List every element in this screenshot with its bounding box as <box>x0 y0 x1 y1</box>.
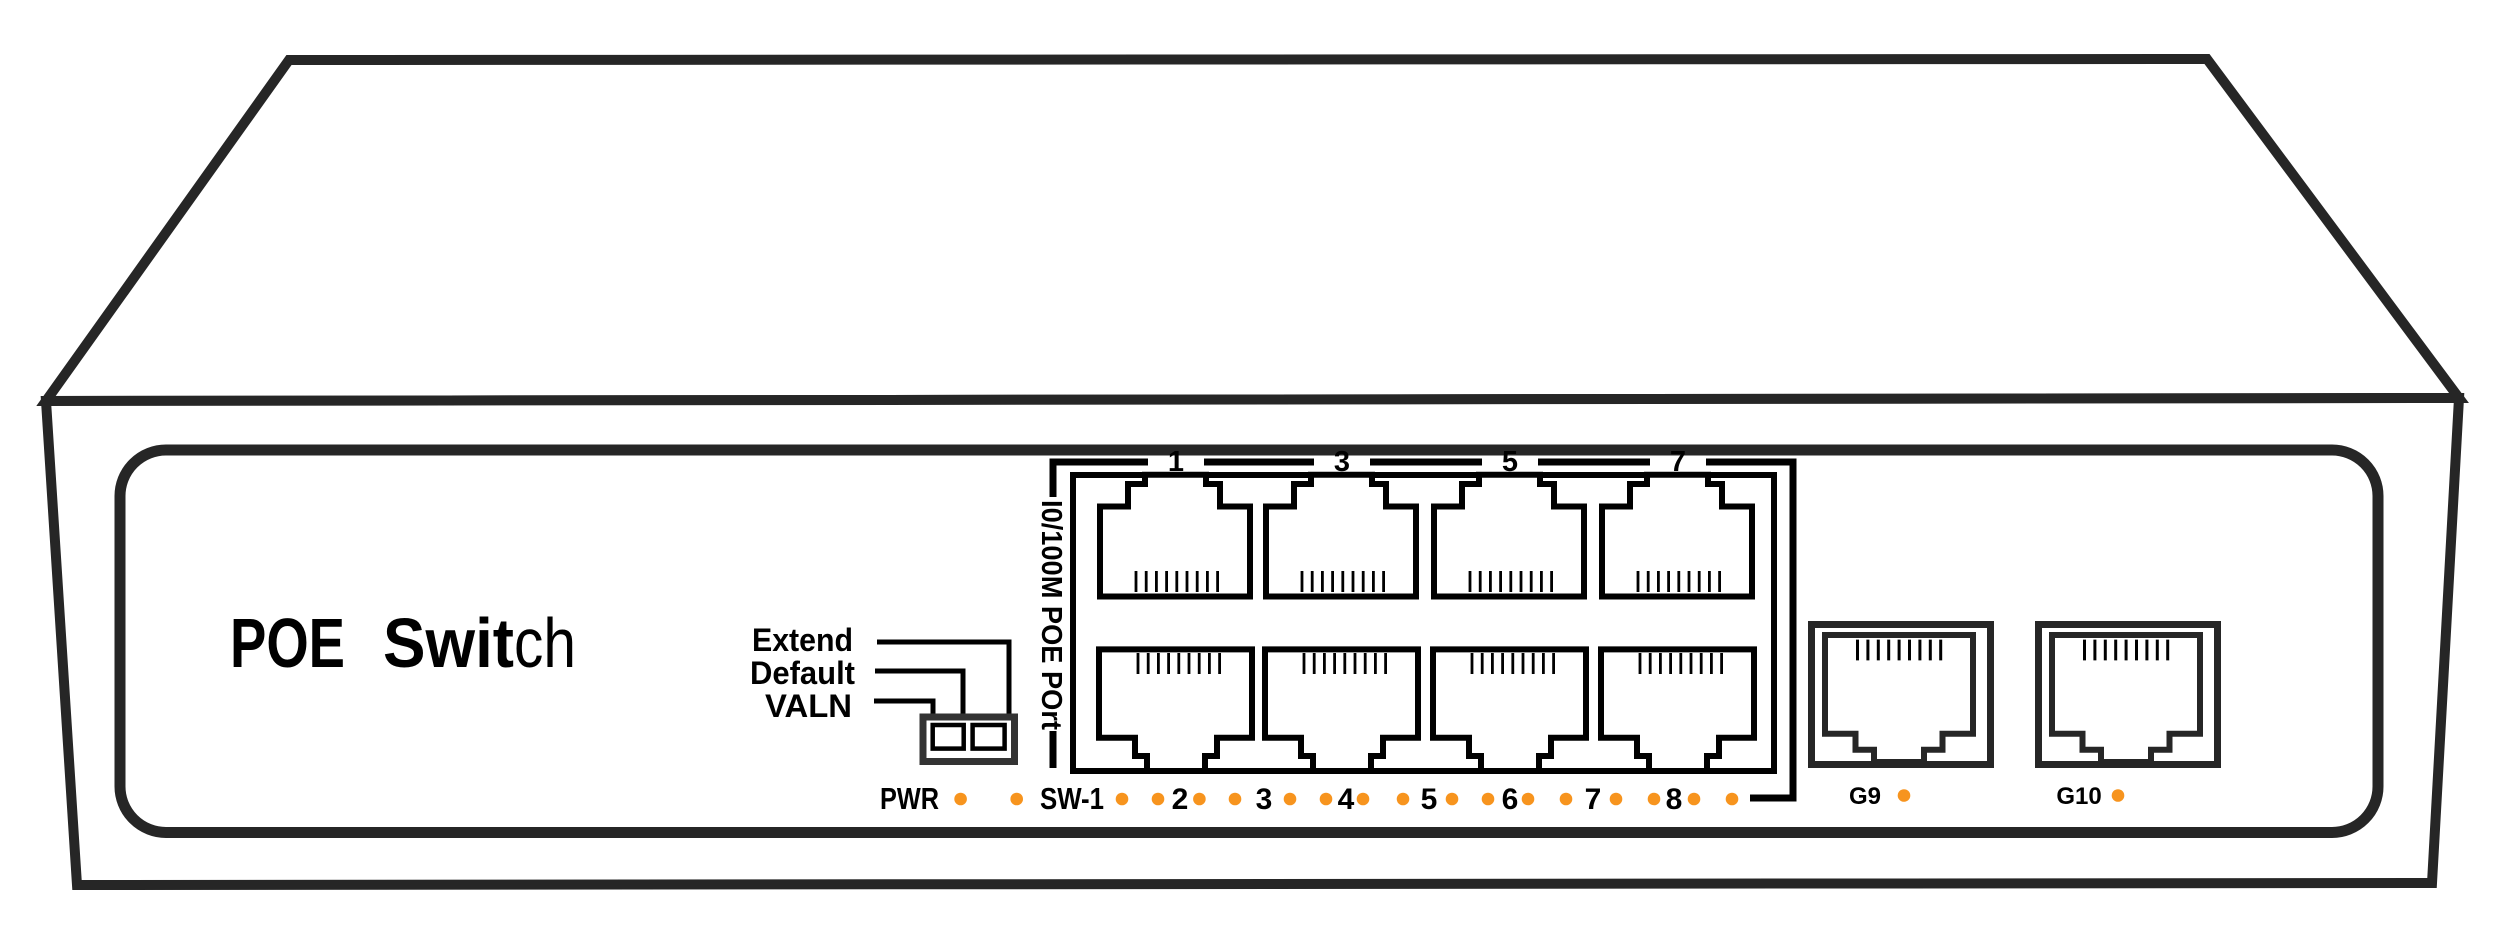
svg-text:PWR: PWR <box>880 781 939 816</box>
svg-text:POE: POE <box>230 604 345 682</box>
svg-text:4: 4 <box>1338 783 1355 816</box>
svg-text:3: 3 <box>1256 783 1273 816</box>
svg-text:7: 7 <box>1585 783 1602 816</box>
svg-text:2: 2 <box>1172 783 1189 816</box>
svg-text:SW-1: SW-1 <box>1040 781 1104 816</box>
svg-text:5: 5 <box>1421 783 1438 816</box>
svg-text:VALN: VALN <box>765 688 852 724</box>
svg-text:G9: G9 <box>1849 783 1881 810</box>
svg-text:I0/100M POE POrt: I0/100M POE POrt <box>1035 500 1067 730</box>
svg-text:ch: ch <box>514 604 576 682</box>
svg-text:Default: Default <box>750 655 855 691</box>
svg-text:G10: G10 <box>2056 783 2101 810</box>
svg-text:Extend: Extend <box>752 622 853 658</box>
svg-text:6: 6 <box>1502 783 1519 816</box>
svg-text:Swit: Swit <box>383 604 514 682</box>
svg-text:8: 8 <box>1666 783 1683 816</box>
